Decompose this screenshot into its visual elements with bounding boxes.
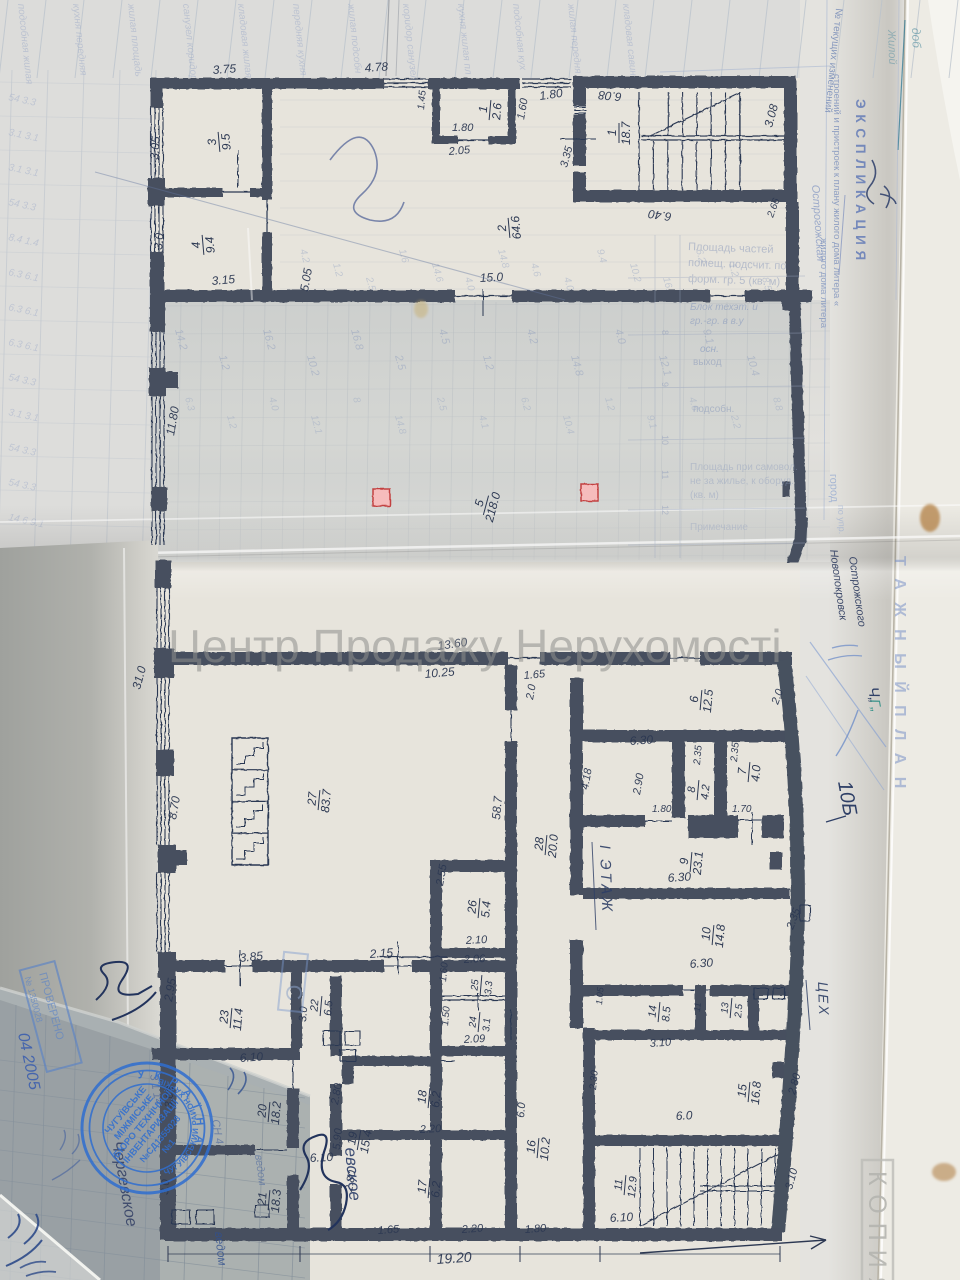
svg-text:1: 1 (476, 105, 491, 113)
svg-text:3.0: 3.0 (151, 232, 166, 250)
svg-text:12.5: 12.5 (700, 688, 716, 713)
svg-text:1: 1 (605, 129, 619, 136)
svg-text:подсобн.: подсобн. (693, 403, 734, 415)
svg-text:город: город (827, 474, 840, 503)
svg-text:КОПИЯ: КОПИЯ (863, 1171, 891, 1280)
svg-text:2.05: 2.05 (447, 144, 471, 158)
svg-text:1.45: 1.45 (416, 89, 429, 110)
svg-text:6.30: 6.30 (629, 732, 654, 748)
svg-text:2.09: 2.09 (463, 1033, 486, 1046)
svg-text:2.20: 2.20 (460, 1222, 484, 1236)
svg-text:4.0: 4.0 (748, 764, 763, 782)
svg-text:18.7: 18.7 (619, 120, 633, 145)
svg-text:19.20: 19.20 (436, 1249, 472, 1267)
svg-text:3.0: 3.0 (297, 1005, 310, 1022)
svg-text:3.1: 3.1 (481, 1017, 493, 1032)
svg-text:11: 11 (613, 1179, 626, 1191)
svg-text:6.30: 6.30 (689, 955, 714, 971)
svg-text:1.80: 1.80 (452, 122, 474, 134)
svg-text:15: 15 (735, 1083, 750, 1098)
svg-text:8.5: 8.5 (660, 1005, 673, 1022)
svg-text:11.4: 11.4 (230, 1007, 246, 1031)
svg-text:Жилой: Жилой (885, 29, 898, 65)
svg-text:выход: выход (693, 357, 722, 368)
svg-text:83.7: 83.7 (318, 787, 334, 813)
svg-text:14: 14 (647, 1005, 660, 1018)
svg-text:10.2: 10.2 (537, 1136, 553, 1161)
svg-text:8: 8 (660, 330, 670, 335)
svg-text:3.75: 3.75 (212, 61, 237, 77)
svg-text:I ЭТАЖ: I ЭТАЖ (596, 845, 615, 915)
svg-text:1.60: 1.60 (438, 961, 451, 982)
svg-text:1.65: 1.65 (377, 1223, 400, 1237)
svg-text:10: 10 (699, 926, 714, 941)
svg-text:Центр Продажу Нерухомості: Центр Продажу Нерухомості (168, 620, 782, 672)
svg-text:гр.-гр. в в.у: гр.-гр. в в.у (690, 316, 745, 327)
svg-text:64.6: 64.6 (508, 215, 524, 240)
svg-text:(кв. м): (кв. м) (690, 490, 719, 501)
svg-text:4.78: 4.78 (364, 59, 389, 75)
svg-text:9.5: 9.5 (218, 133, 233, 151)
svg-text:21: 21 (254, 1192, 269, 1208)
svg-text:4.2: 4.2 (699, 784, 712, 800)
svg-text:16.8: 16.8 (748, 1080, 764, 1105)
svg-text:5.4: 5.4 (478, 900, 493, 918)
svg-text:3.05: 3.05 (147, 135, 163, 160)
svg-text:2.15: 2.15 (368, 945, 394, 961)
svg-text:24: 24 (467, 1016, 479, 1029)
svg-text:10: 10 (660, 435, 670, 445)
svg-text:13: 13 (720, 1002, 732, 1014)
svg-text:Т А Ж Н Ы Й П Л А Н: Т А Ж Н Ы Й П Л А Н (891, 556, 910, 792)
svg-text:6.5: 6.5 (322, 999, 335, 1016)
svg-text:23.1: 23.1 (690, 851, 706, 876)
svg-text:3.3: 3.3 (483, 980, 495, 995)
svg-text:25: 25 (469, 979, 481, 992)
svg-text:осн.: осн. (700, 344, 719, 355)
svg-text:2.35: 2.35 (729, 741, 742, 763)
svg-text:2.35: 2.35 (692, 744, 705, 766)
svg-text:9.4: 9.4 (202, 236, 217, 254)
svg-text:доб: доб (909, 28, 924, 50)
svg-text:1.70: 1.70 (732, 804, 752, 815)
svg-text:12: 12 (660, 505, 670, 515)
svg-text:ЦЕХ: ЦЕХ (815, 982, 832, 1017)
svg-text:2.30: 2.30 (588, 1069, 601, 1091)
svg-text:11: 11 (692, 1002, 703, 1012)
svg-text:по упр.: по упр. (836, 505, 847, 535)
svg-text:6.10: 6.10 (609, 1210, 633, 1225)
svg-text:3.15: 3.15 (211, 272, 236, 288)
svg-text:18.3: 18.3 (268, 1188, 284, 1213)
svg-text:2.06: 2.06 (463, 953, 487, 966)
svg-text:6.10: 6.10 (239, 1049, 264, 1065)
svg-text:2.20: 2.20 (419, 1123, 443, 1136)
svg-text:1.50: 1.50 (440, 1005, 453, 1026)
svg-text:С: С (281, 984, 307, 1001)
svg-text:16: 16 (524, 1139, 539, 1154)
svg-text:1.05: 1.05 (594, 986, 606, 1005)
svg-text:14.8: 14.8 (712, 923, 728, 948)
svg-text:Э К С П Л И К А Ц И Я: Э К С П Л И К А Ц И Я (853, 99, 868, 261)
svg-text:9: 9 (660, 382, 670, 387)
svg-text:2: 2 (495, 224, 510, 233)
svg-text:26: 26 (464, 899, 479, 915)
svg-text:27: 27 (304, 790, 319, 807)
svg-text:6.0: 6.0 (675, 1108, 693, 1123)
svg-text:2.6: 2.6 (489, 102, 505, 121)
svg-text:Блок техэт. и: Блок техэт. и (690, 302, 758, 313)
svg-text:20: 20 (254, 1103, 269, 1119)
svg-text:3.85: 3.85 (239, 949, 264, 965)
svg-text:2.5: 2.5 (733, 1003, 745, 1019)
svg-text:20.0: 20.0 (545, 833, 561, 859)
svg-text:5.90: 5.90 (331, 1127, 345, 1150)
svg-text:18.2: 18.2 (268, 1100, 284, 1125)
svg-text:Площадь при самовол.: Площадь при самовол. (690, 462, 798, 473)
svg-text:6.08: 6.08 (597, 88, 622, 104)
svg-text:23: 23 (216, 1009, 231, 1025)
svg-text:6.0: 6.0 (515, 1101, 528, 1118)
svg-text:12.9: 12.9 (626, 1176, 640, 1198)
svg-text:6.2: 6.2 (428, 1180, 443, 1198)
svg-text:11: 11 (660, 470, 670, 479)
svg-text:17: 17 (415, 1178, 430, 1194)
svg-text:18: 18 (415, 1089, 430, 1104)
svg-text:58.7: 58.7 (489, 794, 505, 820)
svg-text:2.10: 2.10 (465, 934, 489, 947)
svg-text:6.2: 6.2 (428, 1090, 443, 1108)
svg-text:6.30: 6.30 (667, 869, 692, 885)
svg-text:1.80: 1.80 (652, 804, 672, 815)
svg-text:22: 22 (308, 999, 321, 1013)
svg-text:28: 28 (531, 836, 546, 852)
svg-text:не за жилье, к оборуд.: не за жилье, к оборуд. (690, 475, 794, 487)
svg-text:1.80: 1.80 (524, 1222, 547, 1236)
svg-text:Примечание: Примечание (690, 522, 748, 533)
svg-text:3.10: 3.10 (649, 1036, 672, 1050)
